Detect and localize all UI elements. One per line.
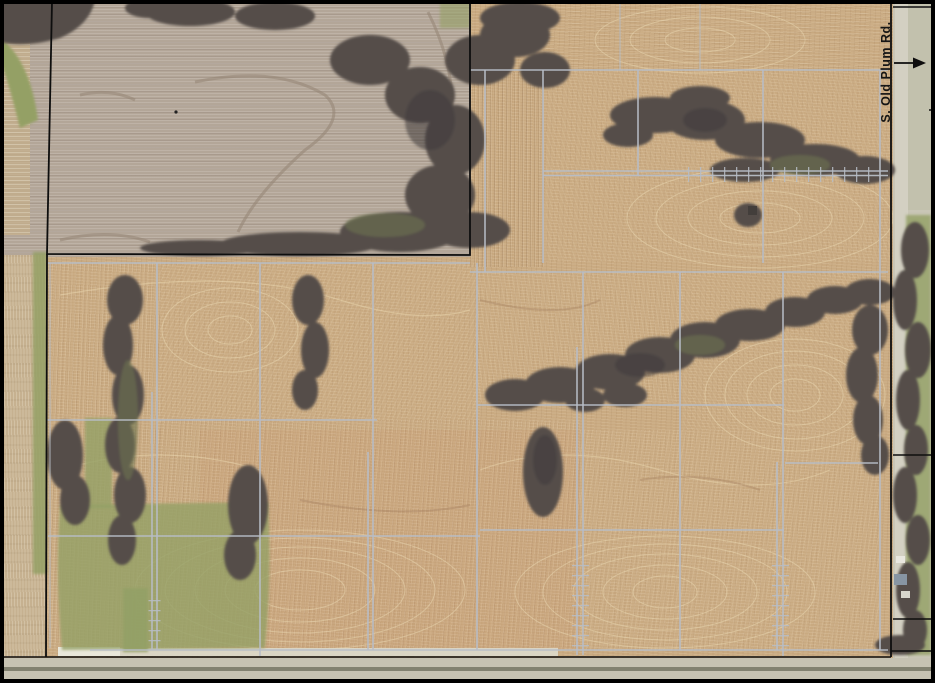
tile-lines (47, 2, 888, 656)
boundary-lines (4, 2, 935, 657)
road-name-label: S. Old Plum Rd. (879, 21, 893, 122)
tile-grid-overlay (0, 0, 935, 683)
road-label-arrow-icon (894, 58, 926, 69)
aerial-photo-map: S. Old Plum Rd. (0, 0, 935, 683)
